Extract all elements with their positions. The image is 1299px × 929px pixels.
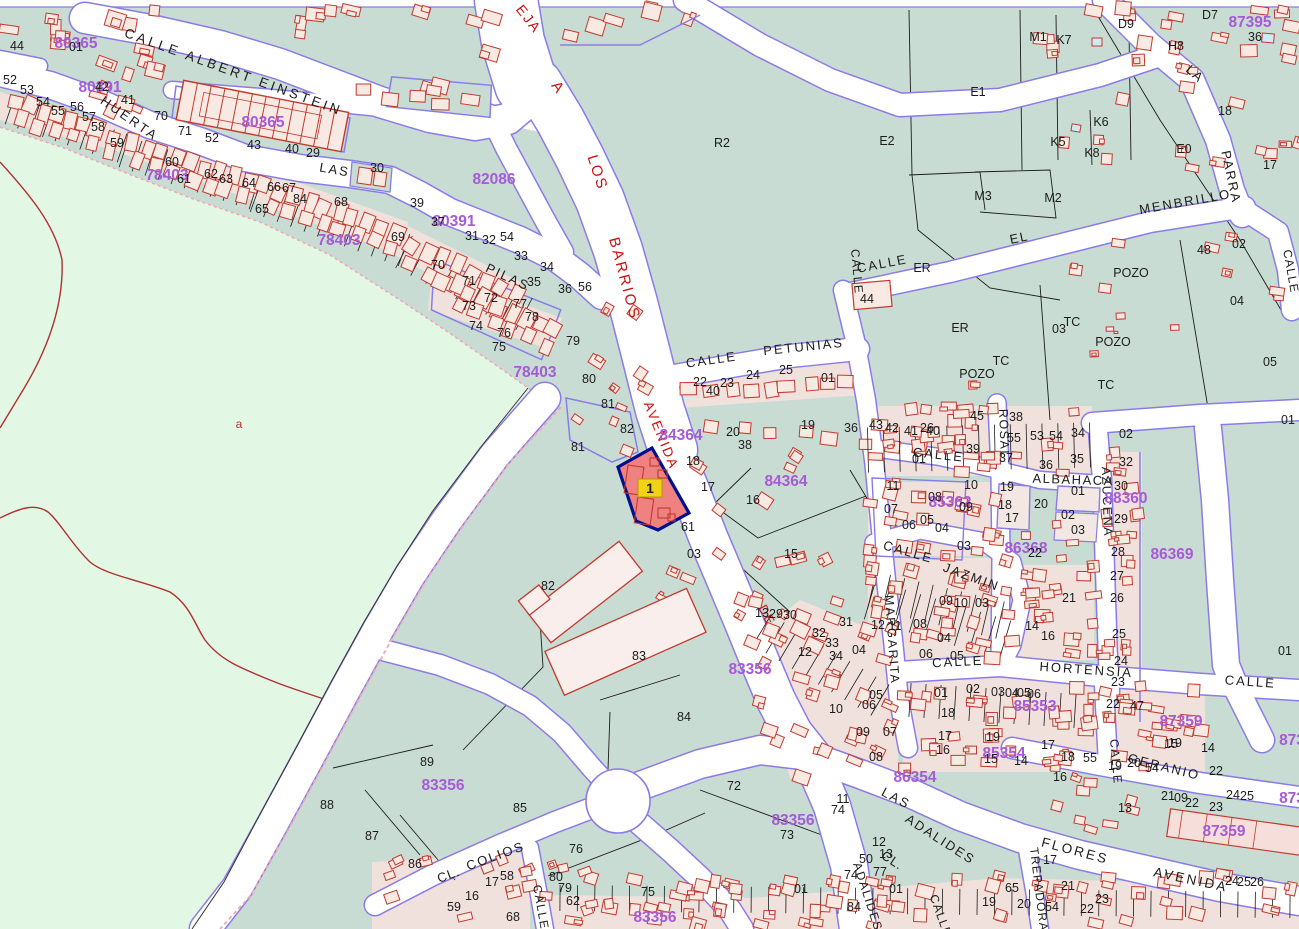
- svg-text:70: 70: [431, 258, 445, 272]
- svg-text:61: 61: [177, 172, 191, 186]
- svg-text:72: 72: [727, 779, 741, 793]
- svg-text:88: 88: [320, 798, 334, 812]
- svg-text:25: 25: [779, 363, 793, 377]
- svg-text:09: 09: [939, 594, 953, 608]
- svg-text:K5: K5: [1050, 135, 1065, 149]
- svg-text:20: 20: [1127, 756, 1141, 770]
- svg-text:13: 13: [1118, 801, 1132, 815]
- svg-text:11: 11: [887, 479, 900, 493]
- svg-text:19: 19: [1108, 759, 1122, 773]
- svg-text:01: 01: [821, 371, 835, 385]
- svg-text:22: 22: [1106, 697, 1120, 711]
- svg-text:03: 03: [687, 547, 701, 561]
- svg-text:52: 52: [205, 131, 219, 145]
- svg-text:06: 06: [902, 518, 916, 532]
- svg-text:28: 28: [1111, 545, 1125, 559]
- svg-text:01: 01: [1281, 413, 1295, 427]
- svg-text:D7: D7: [1202, 8, 1218, 22]
- svg-text:25: 25: [1112, 627, 1126, 641]
- svg-text:20: 20: [726, 425, 740, 439]
- svg-text:13: 13: [879, 847, 893, 861]
- svg-text:43: 43: [869, 418, 883, 432]
- svg-text:POZO: POZO: [1113, 266, 1149, 280]
- svg-text:22: 22: [693, 375, 707, 389]
- svg-text:ER: ER: [951, 321, 968, 335]
- svg-text:01: 01: [934, 686, 948, 700]
- svg-text:55: 55: [1007, 431, 1021, 445]
- svg-text:02: 02: [1061, 508, 1075, 522]
- svg-text:42: 42: [885, 421, 899, 435]
- svg-text:09: 09: [959, 500, 973, 514]
- svg-text:87: 87: [365, 829, 379, 843]
- svg-text:27: 27: [1110, 569, 1124, 583]
- svg-text:36: 36: [844, 421, 858, 435]
- svg-text:30: 30: [370, 161, 384, 175]
- svg-text:40: 40: [706, 384, 720, 398]
- svg-text:69: 69: [391, 230, 405, 244]
- svg-text:25: 25: [1237, 875, 1251, 889]
- svg-text:02: 02: [966, 682, 980, 696]
- svg-text:08: 08: [928, 490, 942, 504]
- svg-text:35: 35: [527, 275, 541, 289]
- svg-text:15: 15: [984, 752, 998, 766]
- svg-text:17: 17: [1005, 511, 1019, 525]
- svg-text:D9: D9: [1118, 17, 1134, 31]
- svg-text:ER: ER: [913, 261, 930, 275]
- svg-text:20: 20: [1034, 497, 1048, 511]
- svg-text:08: 08: [913, 617, 927, 631]
- svg-text:32: 32: [482, 233, 496, 247]
- svg-text:05: 05: [920, 513, 934, 527]
- svg-text:37: 37: [431, 215, 445, 229]
- svg-text:53: 53: [1030, 429, 1044, 443]
- svg-text:84364: 84364: [764, 473, 807, 490]
- svg-text:19: 19: [986, 730, 1000, 744]
- svg-text:33: 33: [825, 636, 839, 650]
- svg-text:53: 53: [20, 83, 34, 97]
- svg-text:09: 09: [856, 725, 870, 739]
- svg-text:84: 84: [293, 192, 307, 206]
- svg-text:36: 36: [1248, 30, 1262, 44]
- svg-text:87395: 87395: [1228, 14, 1271, 31]
- svg-text:01: 01: [1278, 644, 1292, 658]
- svg-text:12: 12: [871, 618, 885, 632]
- svg-text:12: 12: [798, 645, 812, 659]
- svg-text:48: 48: [1197, 243, 1211, 257]
- svg-text:10: 10: [954, 596, 968, 610]
- svg-text:16: 16: [936, 743, 950, 757]
- svg-text:05: 05: [1263, 355, 1277, 369]
- svg-text:60: 60: [165, 155, 179, 169]
- svg-text:K6: K6: [1093, 115, 1108, 129]
- svg-text:42: 42: [95, 80, 109, 94]
- svg-text:78403: 78403: [317, 232, 360, 249]
- svg-text:M1: M1: [1029, 30, 1046, 44]
- svg-text:81: 81: [571, 440, 585, 454]
- svg-text:16: 16: [746, 493, 760, 507]
- svg-text:75: 75: [641, 885, 655, 899]
- svg-text:81: 81: [601, 397, 615, 411]
- svg-text:03: 03: [957, 539, 971, 553]
- svg-text:50: 50: [859, 852, 873, 866]
- svg-text:23: 23: [1111, 675, 1125, 689]
- svg-text:18: 18: [941, 706, 955, 720]
- svg-text:68: 68: [506, 910, 520, 924]
- svg-text:62: 62: [566, 894, 580, 908]
- svg-text:55: 55: [1083, 751, 1097, 765]
- svg-text:54: 54: [1049, 429, 1063, 443]
- svg-text:20: 20: [1017, 897, 1031, 911]
- svg-text:36: 36: [1039, 458, 1053, 472]
- svg-text:82086: 82086: [472, 171, 515, 188]
- svg-text:17: 17: [701, 480, 715, 494]
- svg-text:23: 23: [720, 376, 734, 390]
- svg-text:83356: 83356: [771, 812, 814, 829]
- svg-text:84: 84: [677, 710, 691, 724]
- svg-text:01: 01: [1071, 484, 1085, 498]
- svg-text:87359: 87359: [1202, 823, 1245, 840]
- svg-text:76: 76: [569, 842, 583, 856]
- svg-text:15: 15: [1164, 737, 1178, 751]
- svg-text:E2: E2: [879, 134, 894, 148]
- svg-text:06: 06: [1027, 687, 1041, 701]
- svg-text:08: 08: [869, 750, 883, 764]
- svg-text:21: 21: [1062, 591, 1076, 605]
- svg-text:04: 04: [1230, 294, 1244, 308]
- svg-text:38: 38: [738, 438, 752, 452]
- svg-text:POZO: POZO: [959, 367, 995, 381]
- svg-text:10: 10: [964, 478, 978, 492]
- svg-text:65: 65: [1005, 881, 1019, 895]
- svg-text:04: 04: [852, 643, 866, 657]
- svg-text:01: 01: [69, 40, 83, 54]
- svg-text:11: 11: [889, 619, 902, 633]
- svg-text:54: 54: [1145, 761, 1159, 775]
- svg-text:a: a: [236, 417, 243, 431]
- svg-text:18: 18: [686, 454, 700, 468]
- svg-text:31: 31: [839, 615, 853, 629]
- svg-text:17: 17: [1043, 853, 1057, 867]
- svg-text:36: 36: [558, 282, 572, 296]
- svg-text:24: 24: [746, 368, 760, 382]
- svg-text:35: 35: [1070, 452, 1084, 466]
- svg-text:14: 14: [1201, 741, 1215, 755]
- svg-text:87359: 87359: [1159, 713, 1202, 730]
- svg-text:83356: 83356: [633, 909, 676, 926]
- svg-text:1: 1: [646, 480, 654, 496]
- svg-text:34: 34: [540, 260, 554, 274]
- svg-text:77: 77: [513, 297, 527, 311]
- svg-text:19: 19: [801, 418, 815, 432]
- svg-text:25: 25: [1240, 789, 1254, 803]
- svg-text:07: 07: [884, 502, 898, 516]
- svg-text:82: 82: [620, 422, 634, 436]
- svg-text:07: 07: [883, 725, 897, 739]
- svg-text:80365: 80365: [241, 114, 284, 131]
- svg-text:01: 01: [794, 882, 808, 896]
- svg-text:74: 74: [469, 319, 483, 333]
- svg-text:14: 14: [1014, 754, 1028, 768]
- svg-text:84364: 84364: [659, 427, 702, 444]
- svg-text:21: 21: [1161, 789, 1175, 803]
- svg-text:66: 66: [267, 180, 281, 194]
- svg-text:34: 34: [829, 649, 843, 663]
- svg-text:16: 16: [1053, 770, 1067, 784]
- svg-text:77: 77: [873, 865, 887, 879]
- svg-text:21: 21: [1061, 879, 1075, 893]
- svg-text:16: 16: [1041, 629, 1055, 643]
- svg-text:78403: 78403: [513, 364, 556, 381]
- svg-text:29: 29: [1114, 512, 1128, 526]
- svg-text:06: 06: [919, 647, 933, 661]
- svg-text:65: 65: [255, 202, 269, 216]
- svg-text:24: 24: [1114, 654, 1128, 668]
- svg-text:58: 58: [91, 120, 105, 134]
- svg-text:24: 24: [1226, 788, 1240, 802]
- svg-text:R2: R2: [714, 136, 730, 150]
- svg-text:40: 40: [285, 142, 299, 156]
- svg-text:22: 22: [1080, 902, 1094, 916]
- svg-text:05: 05: [950, 649, 964, 663]
- svg-text:43: 43: [247, 138, 261, 152]
- svg-text:33: 33: [514, 249, 528, 263]
- svg-text:TC: TC: [993, 354, 1010, 368]
- svg-text:44: 44: [860, 292, 874, 306]
- svg-text:04: 04: [937, 631, 951, 645]
- svg-text:17: 17: [1263, 158, 1277, 172]
- svg-text:873: 873: [1279, 732, 1299, 749]
- svg-text:38: 38: [1009, 410, 1023, 424]
- svg-text:40: 40: [926, 424, 940, 438]
- svg-text:83: 83: [632, 649, 646, 663]
- svg-text:73: 73: [462, 299, 476, 313]
- svg-text:23: 23: [1095, 892, 1109, 906]
- svg-text:54: 54: [36, 95, 50, 109]
- svg-text:30: 30: [783, 608, 797, 622]
- svg-text:26: 26: [1110, 591, 1124, 605]
- svg-text:22: 22: [1028, 546, 1042, 560]
- svg-text:39: 39: [410, 196, 424, 210]
- svg-text:86354: 86354: [893, 769, 936, 786]
- svg-text:56: 56: [578, 280, 592, 294]
- svg-text:89: 89: [420, 755, 434, 769]
- svg-text:22: 22: [1185, 796, 1199, 810]
- svg-text:E0: E0: [1176, 142, 1191, 156]
- svg-text:55: 55: [51, 104, 65, 118]
- svg-text:H8: H8: [1168, 39, 1184, 53]
- svg-text:29: 29: [769, 607, 783, 621]
- svg-text:K8: K8: [1084, 146, 1099, 160]
- svg-text:47: 47: [1130, 699, 1144, 713]
- svg-text:02: 02: [1119, 427, 1133, 441]
- svg-text:54: 54: [1045, 900, 1059, 914]
- svg-text:74: 74: [844, 868, 858, 882]
- svg-text:59: 59: [447, 900, 461, 914]
- svg-text:82: 82: [541, 579, 555, 593]
- svg-text:84: 84: [847, 900, 861, 914]
- svg-text:32: 32: [1119, 455, 1133, 469]
- svg-text:74: 74: [831, 803, 845, 817]
- svg-text:18: 18: [1061, 750, 1075, 764]
- svg-text:85: 85: [513, 801, 527, 815]
- svg-text:75: 75: [492, 340, 506, 354]
- svg-text:10: 10: [829, 702, 843, 716]
- svg-text:72: 72: [484, 291, 498, 305]
- svg-text:37: 37: [999, 451, 1013, 465]
- svg-text:63: 63: [219, 172, 233, 186]
- svg-text:E1: E1: [970, 85, 985, 99]
- svg-text:19: 19: [982, 895, 996, 909]
- svg-text:34: 34: [1071, 426, 1085, 440]
- svg-text:17: 17: [485, 875, 499, 889]
- svg-text:32: 32: [812, 626, 826, 640]
- svg-text:44: 44: [10, 39, 24, 53]
- svg-text:873: 873: [1279, 790, 1299, 807]
- svg-text:61: 61: [681, 520, 695, 534]
- svg-text:K7: K7: [1056, 33, 1071, 47]
- svg-text:78: 78: [525, 310, 539, 324]
- svg-text:19: 19: [1000, 480, 1014, 494]
- svg-text:13: 13: [755, 606, 769, 620]
- svg-text:71: 71: [462, 274, 476, 288]
- svg-text:TC: TC: [1098, 378, 1115, 392]
- svg-text:70: 70: [154, 109, 168, 123]
- svg-text:86: 86: [408, 857, 422, 871]
- svg-text:26: 26: [1250, 875, 1264, 889]
- svg-text:29: 29: [306, 146, 320, 160]
- svg-text:54: 54: [500, 230, 514, 244]
- svg-text:68: 68: [334, 195, 348, 209]
- svg-text:POZO: POZO: [1095, 335, 1131, 349]
- svg-text:80: 80: [582, 372, 596, 386]
- svg-text:73: 73: [780, 828, 794, 842]
- svg-text:30: 30: [1114, 479, 1128, 493]
- svg-text:31: 31: [465, 229, 479, 243]
- svg-text:03: 03: [1071, 523, 1085, 537]
- svg-text:52: 52: [3, 73, 17, 87]
- svg-text:17: 17: [1041, 738, 1055, 752]
- svg-text:23: 23: [1209, 800, 1223, 814]
- svg-text:58: 58: [500, 869, 514, 883]
- svg-text:17: 17: [938, 729, 952, 743]
- svg-text:01: 01: [889, 882, 903, 896]
- svg-text:16: 16: [465, 889, 479, 903]
- svg-text:04: 04: [935, 521, 949, 535]
- svg-text:41: 41: [904, 424, 918, 438]
- svg-text:06: 06: [862, 698, 876, 712]
- svg-text:22: 22: [1209, 764, 1223, 778]
- svg-text:02: 02: [1232, 237, 1246, 251]
- svg-text:79: 79: [566, 334, 580, 348]
- svg-text:01: 01: [912, 452, 926, 466]
- svg-text:14: 14: [1025, 619, 1039, 633]
- svg-text:M3: M3: [974, 189, 991, 203]
- svg-text:03: 03: [975, 596, 989, 610]
- svg-text:M2: M2: [1044, 191, 1061, 205]
- svg-text:71: 71: [178, 124, 192, 138]
- svg-text:64: 64: [242, 176, 256, 190]
- svg-text:15: 15: [784, 547, 798, 561]
- svg-text:59: 59: [110, 136, 124, 150]
- svg-text:62: 62: [204, 167, 218, 181]
- svg-text:83356: 83356: [728, 661, 771, 678]
- svg-text:76: 76: [497, 326, 511, 340]
- svg-text:TC: TC: [1064, 315, 1081, 329]
- svg-text:83356: 83356: [421, 777, 464, 794]
- svg-text:45: 45: [970, 409, 984, 423]
- svg-text:39: 39: [966, 442, 980, 456]
- svg-text:79: 79: [558, 881, 572, 895]
- svg-text:18: 18: [998, 498, 1012, 512]
- svg-text:18: 18: [1218, 104, 1232, 118]
- svg-text:41: 41: [121, 93, 135, 107]
- svg-text:03: 03: [991, 685, 1005, 699]
- svg-text:86369: 86369: [1150, 546, 1193, 563]
